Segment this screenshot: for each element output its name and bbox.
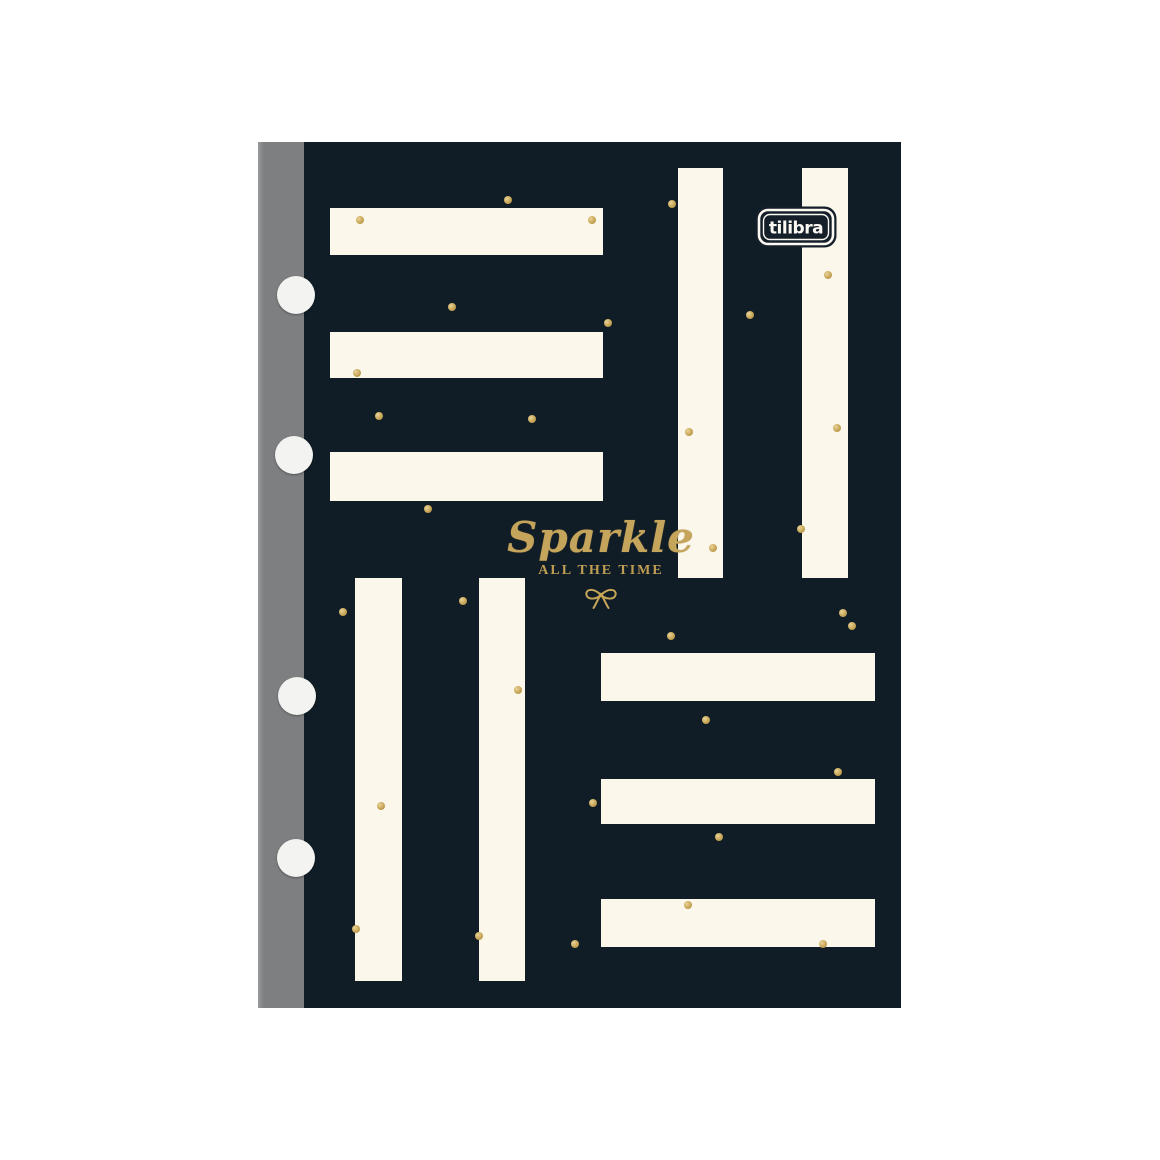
sparkle-dot [356, 216, 364, 224]
stripe [601, 653, 875, 701]
product-photo: tilibra Sparkle ALL THE TIME [0, 0, 1160, 1160]
sparkle-dot [685, 428, 693, 436]
stripe [330, 332, 603, 378]
sparkle-dot [459, 597, 467, 605]
stripe [601, 899, 875, 947]
sparkle-dot [377, 802, 385, 810]
sparkle-dot [514, 686, 522, 694]
stripe [355, 578, 402, 981]
sparkle-dot [797, 525, 805, 533]
sparkle-dot [834, 768, 842, 776]
sparkle-dot [528, 415, 536, 423]
stripe [330, 208, 603, 255]
sparkle-dot [604, 319, 612, 327]
notebook-spine [258, 142, 304, 1008]
binder-hole [277, 839, 315, 877]
stripe [479, 578, 525, 981]
sparkle-dot [746, 311, 754, 319]
sparkle-dot [375, 412, 383, 420]
sparkle-dot [715, 833, 723, 841]
sparkle-dot [824, 271, 832, 279]
binder-hole [275, 436, 313, 474]
sparkle-dot [353, 369, 361, 377]
stripe [601, 779, 875, 824]
sparkle-dot [589, 799, 597, 807]
sparkle-dot [668, 200, 676, 208]
cover-title: Sparkle [471, 515, 731, 561]
cover-text-block: Sparkle ALL THE TIME [471, 515, 731, 611]
sparkle-dot [702, 716, 710, 724]
sparkle-dot [424, 505, 432, 513]
stripe [330, 452, 603, 501]
sparkle-dot [848, 622, 856, 630]
sparkle-dot [839, 609, 847, 617]
sparkle-dot [667, 632, 675, 640]
sparkle-dot [504, 196, 512, 204]
brand-logo-text: tilibra [769, 219, 823, 239]
sparkle-dot [352, 925, 360, 933]
cover-subtitle: ALL THE TIME [471, 563, 731, 579]
binder-hole [278, 677, 316, 715]
sparkle-dot [339, 608, 347, 616]
sparkle-dot [684, 901, 692, 909]
ribbon-bow-icon [582, 585, 620, 611]
sparkle-dot [833, 424, 841, 432]
sparkle-dot [819, 940, 827, 948]
binder-hole [277, 276, 315, 314]
tilibra-logo: tilibra [755, 206, 837, 248]
sparkle-dot [571, 940, 579, 948]
sparkle-dot [475, 932, 483, 940]
sparkle-dot [448, 303, 456, 311]
sparkle-dot [588, 216, 596, 224]
